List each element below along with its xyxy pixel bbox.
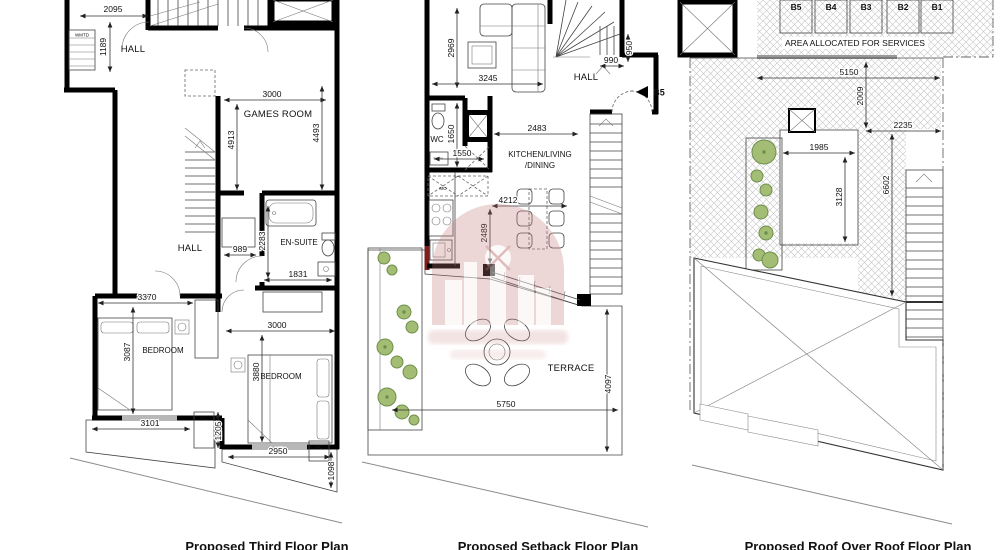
terrace-planter [368, 248, 422, 430]
dim-1205: 1205 [213, 421, 223, 440]
dim-4913: 4913 [226, 130, 236, 149]
unit-b5-label: B5 [791, 2, 802, 12]
caption-setback-floor: Proposed Setback Floor Plan [458, 539, 639, 550]
dim-1098: 1098 [326, 461, 336, 480]
terrace-stair [590, 114, 622, 294]
site-boundary-line-2 [362, 462, 648, 527]
dim-3880: 3880 [251, 362, 261, 381]
dim-3000-games: 3000 [263, 89, 282, 99]
dim-6602: 6602 [881, 175, 891, 194]
dim-3087: 3087 [122, 342, 132, 361]
lift-shaft [273, 0, 333, 22]
wmtd-closet: WMTD [69, 30, 95, 70]
plan1-walls [64, 0, 339, 449]
roof-stair [906, 170, 943, 348]
bed-right [231, 355, 332, 443]
dim-2969: 2969 [446, 38, 456, 57]
floor-plan-sheet: WMTD [0, 0, 1000, 550]
planter-bushes [377, 252, 419, 425]
kitchen-label-2: /DINING [525, 161, 555, 170]
ac-shaft-right: AC [309, 441, 329, 461]
floor-plans-drawing: WMTD [0, 0, 1000, 550]
plan-third-floor: WMTD [64, 0, 342, 523]
ac-left-label: AC [200, 416, 209, 422]
dim-4097: 4097 [603, 374, 613, 393]
plan-roof-over-roof: B5 B4 B3 B2 B1 AREA ALLOCATED FOR SERVIC… [680, 0, 993, 524]
dim-2283: 2283 [257, 231, 267, 250]
dim-3101: 3101 [141, 418, 160, 428]
skylight [789, 109, 815, 132]
wc-label: WC [430, 135, 444, 144]
dim-1189: 1189 [98, 38, 108, 57]
agency-watermark [428, 204, 568, 359]
dim-1985: 1985 [810, 142, 829, 152]
plan-captions: Proposed Third Floor Plan Proposed Setba… [185, 539, 971, 550]
dim-3000-bed: 3000 [268, 320, 287, 330]
games-room-label: GAMES ROOM [244, 109, 313, 120]
roof-lift-shaft [680, 2, 735, 55]
unit-b4-label: B4 [826, 2, 837, 12]
unit-b1-label: B1 [932, 2, 943, 12]
dim-989: 989 [233, 244, 247, 254]
internal-staircase [185, 70, 215, 232]
dim-1550: 1550 [453, 148, 472, 158]
bed-left [98, 318, 189, 410]
dim-950: 950 [624, 41, 634, 55]
dim-4212: 4212 [499, 195, 518, 205]
main-staircase [150, 0, 258, 26]
caption-roof-over-roof: Proposed Roof Over Roof Floor Plan [745, 539, 972, 550]
dim-4493: 4493 [311, 123, 321, 142]
dim-5150: 5150 [840, 67, 859, 77]
service-duct [464, 110, 492, 142]
terrace-label: TERRACE [548, 363, 595, 374]
dim-2009: 2009 [855, 86, 865, 105]
wmtd-label: WMTD [75, 33, 90, 38]
entry-marker-label: B5 [653, 88, 665, 98]
dim-3370: 3370 [138, 292, 157, 302]
dim-2483: 2483 [528, 123, 547, 133]
dim-2235: 2235 [894, 120, 913, 130]
ensuite-label: EN-SUITE [280, 238, 317, 247]
hall-top-label: HALL [121, 44, 146, 55]
kitchen-label-1: KITCHEN/LIVING [508, 150, 572, 159]
caption-third-floor: Proposed Third Floor Plan [185, 539, 348, 550]
unit-entry-marker: B5 [636, 86, 665, 98]
hall-mid-label: HALL [178, 243, 203, 254]
dim-990: 990 [604, 55, 618, 65]
dim-2095: 2095 [104, 4, 123, 14]
dim-3245: 3245 [479, 73, 498, 83]
appliance-label: MO [439, 186, 447, 191]
hall-label: HALL [574, 72, 599, 83]
plan1-doors [122, 22, 268, 312]
dim-2950: 2950 [269, 446, 288, 456]
unit-b3-label: B3 [861, 2, 872, 12]
dim-3128: 3128 [834, 187, 844, 206]
site-boundary-line-1 [70, 458, 342, 523]
ac-right-label: AC [315, 445, 324, 451]
gray-beam [757, 55, 897, 59]
dim-1650: 1650 [446, 124, 456, 143]
dim-5750: 5750 [497, 399, 516, 409]
services-label: AREA ALLOCATED FOR SERVICES [785, 38, 925, 48]
dim-1831: 1831 [289, 269, 308, 279]
plan-setback-floor: B5 MO [362, 0, 665, 527]
bedroom-right-label: BEDROOM [260, 372, 302, 381]
bedroom-left-label: BEDROOM [142, 346, 184, 355]
unit-b2-label: B2 [898, 2, 909, 12]
